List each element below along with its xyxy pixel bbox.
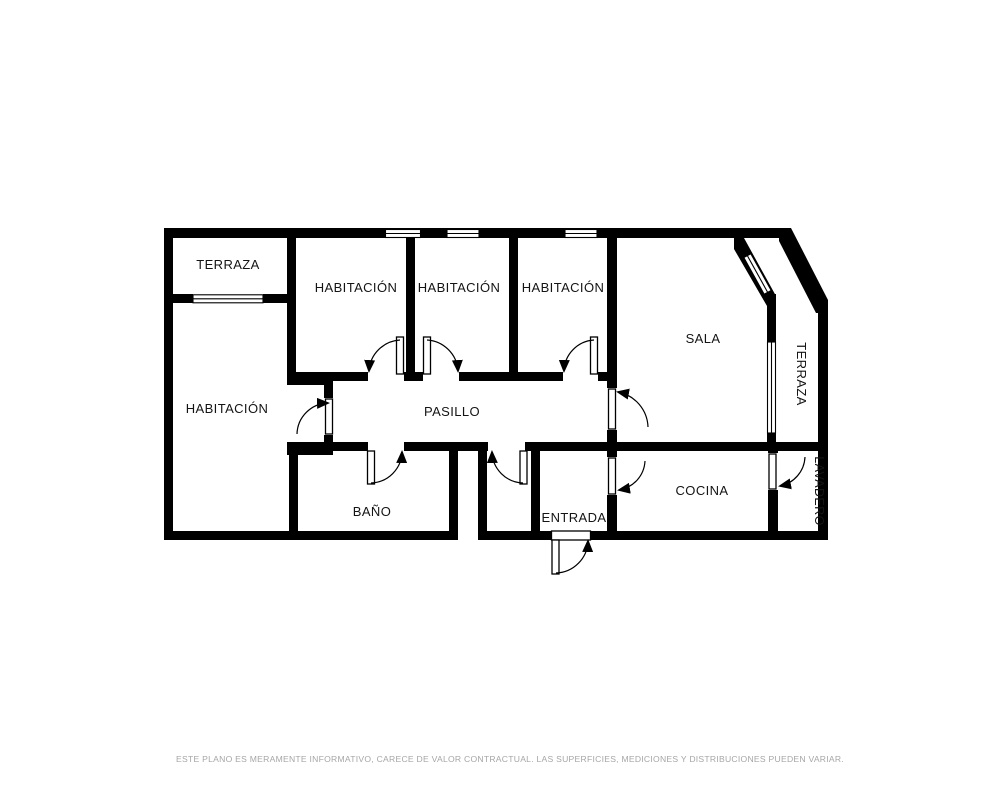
wall-entrada-cocina-lower xyxy=(607,495,617,531)
label-terraza-right: TERRAZA xyxy=(794,342,809,405)
disclaimer-text: ESTE PLANO ES MERAMENTE INFORMATIVO, CAR… xyxy=(176,754,844,764)
wall-habitacion-left-door-lower xyxy=(324,435,333,443)
wall-terraza-habitacion1 xyxy=(287,238,296,385)
label-lavadero: LAVADERO xyxy=(812,456,826,525)
window-terraza-habitacion-left xyxy=(193,295,263,303)
floorplan-page: TERRAZA HABITACIÓN HABITACIÓN HABITACIÓN… xyxy=(0,0,1000,800)
wall-habitacion2-habitacion3 xyxy=(509,238,518,379)
door-leaf-habitacion-2 xyxy=(424,337,431,374)
door-leaf-closet xyxy=(520,451,527,484)
door-leaf-lavadero xyxy=(769,454,776,489)
wall-cocina-lavadero-lower xyxy=(768,490,778,540)
wall-bottom-exterior-middle xyxy=(478,531,552,540)
wall-pasillo-south-c xyxy=(525,442,827,451)
label-habitacion-3: HABITACIÓN xyxy=(522,280,605,295)
label-sala: SALA xyxy=(686,331,721,346)
door-leaf-habitacion-3 xyxy=(591,337,598,374)
wall-habitacion1-habitacion2 xyxy=(406,238,415,379)
label-habitacion-left: HABITACIÓN xyxy=(186,401,269,416)
wall-west-exterior xyxy=(164,228,173,540)
label-habitacion-2: HABITACIÓN xyxy=(418,280,501,295)
wall-terraza-bottom-east xyxy=(263,294,296,303)
label-pasillo: PASILLO xyxy=(424,404,480,419)
window-habitacion-3 xyxy=(565,230,597,238)
floorplan-drawing: TERRAZA HABITACIÓN HABITACIÓN HABITACIÓN… xyxy=(0,0,1000,800)
page-background xyxy=(0,0,1000,800)
label-habitacion-1: HABITACIÓN xyxy=(315,280,398,295)
wall-bottom-exterior-left xyxy=(164,531,458,540)
door-leaf-cocina xyxy=(609,458,616,494)
wall-pasillo-north-d xyxy=(598,372,617,381)
wall-lightwell-east xyxy=(478,443,487,531)
wall-closet-east xyxy=(531,443,540,531)
wall-bottom-exterior-right xyxy=(590,531,827,540)
wall-pasillo-north-c xyxy=(459,372,563,381)
wall-bano-west xyxy=(289,443,298,540)
door-leaf-sala xyxy=(609,389,616,429)
label-entrada: ENTRADA xyxy=(542,510,607,525)
window-habitacion-1 xyxy=(386,230,421,238)
wall-bano-east xyxy=(449,451,458,540)
door-leaf-habitacion-left xyxy=(326,399,333,434)
wall-pasillo-north-b xyxy=(404,372,423,381)
door-threshold-entrada xyxy=(552,531,591,540)
wall-habitacion3-sala xyxy=(607,238,617,388)
wall-pasillo-south-b xyxy=(404,442,488,451)
door-leaf-habitacion-1 xyxy=(397,337,404,374)
wall-terraza-bottom-west xyxy=(164,294,193,303)
wall-pasillo-south-west-block xyxy=(287,442,333,455)
label-cocina: COCINA xyxy=(676,483,729,498)
label-terraza-top-left: TERRAZA xyxy=(196,257,259,272)
door-leaf-entrada xyxy=(552,540,559,574)
label-bano: BAÑO xyxy=(353,504,391,519)
door-leaf-bano xyxy=(368,451,375,484)
window-sala-terraza xyxy=(768,342,776,433)
wall-sala-terraza-upper xyxy=(767,294,776,342)
wall-pasillo-north-west-block xyxy=(287,372,333,385)
window-habitacion-2 xyxy=(447,230,479,238)
